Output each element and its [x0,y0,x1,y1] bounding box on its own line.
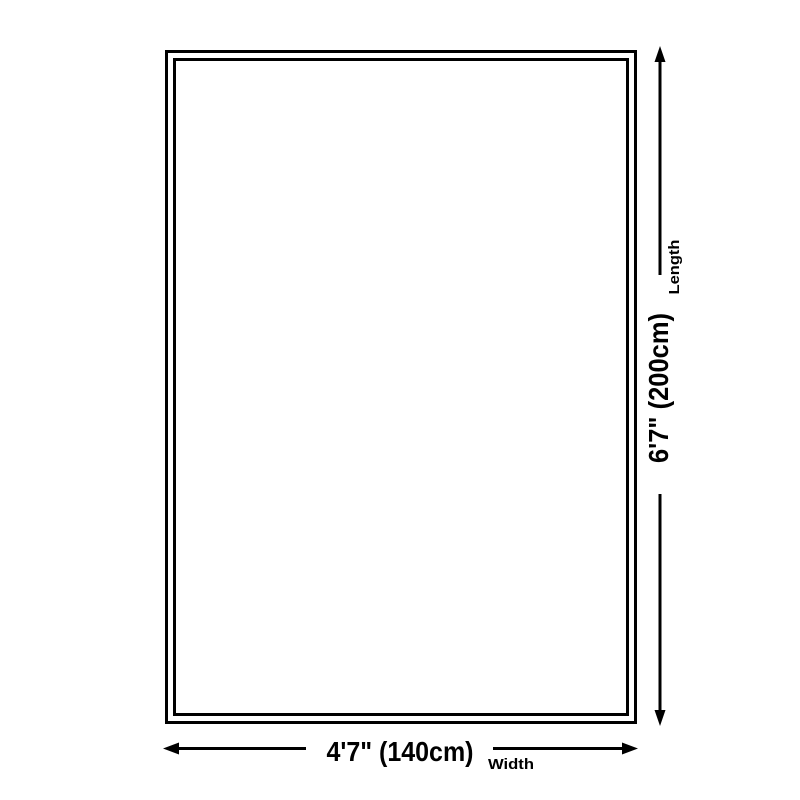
product-outline-inner [175,60,628,715]
arrow-up-icon [655,46,666,62]
arrow-left-icon [163,743,179,755]
length-dimension-arrow: 6'7" (200cm) Length [643,46,683,726]
size-diagram: 6'7" (200cm) Length 4'7" (140cm) Width [0,0,800,800]
width-value-label: 4'7" (140cm) [327,736,474,767]
length-value-label: 6'7" (200cm) [643,313,674,463]
product-outline [167,52,636,723]
width-axis-name: Width [488,756,534,773]
arrow-right-icon [622,743,638,755]
width-dimension-arrow: 4'7" (140cm) Width [163,736,638,773]
product-outline-outer [167,52,636,723]
length-axis-name: Length [666,240,683,295]
size-diagram-svg: 6'7" (200cm) Length 4'7" (140cm) Width [0,0,800,800]
arrow-down-icon [655,710,666,726]
